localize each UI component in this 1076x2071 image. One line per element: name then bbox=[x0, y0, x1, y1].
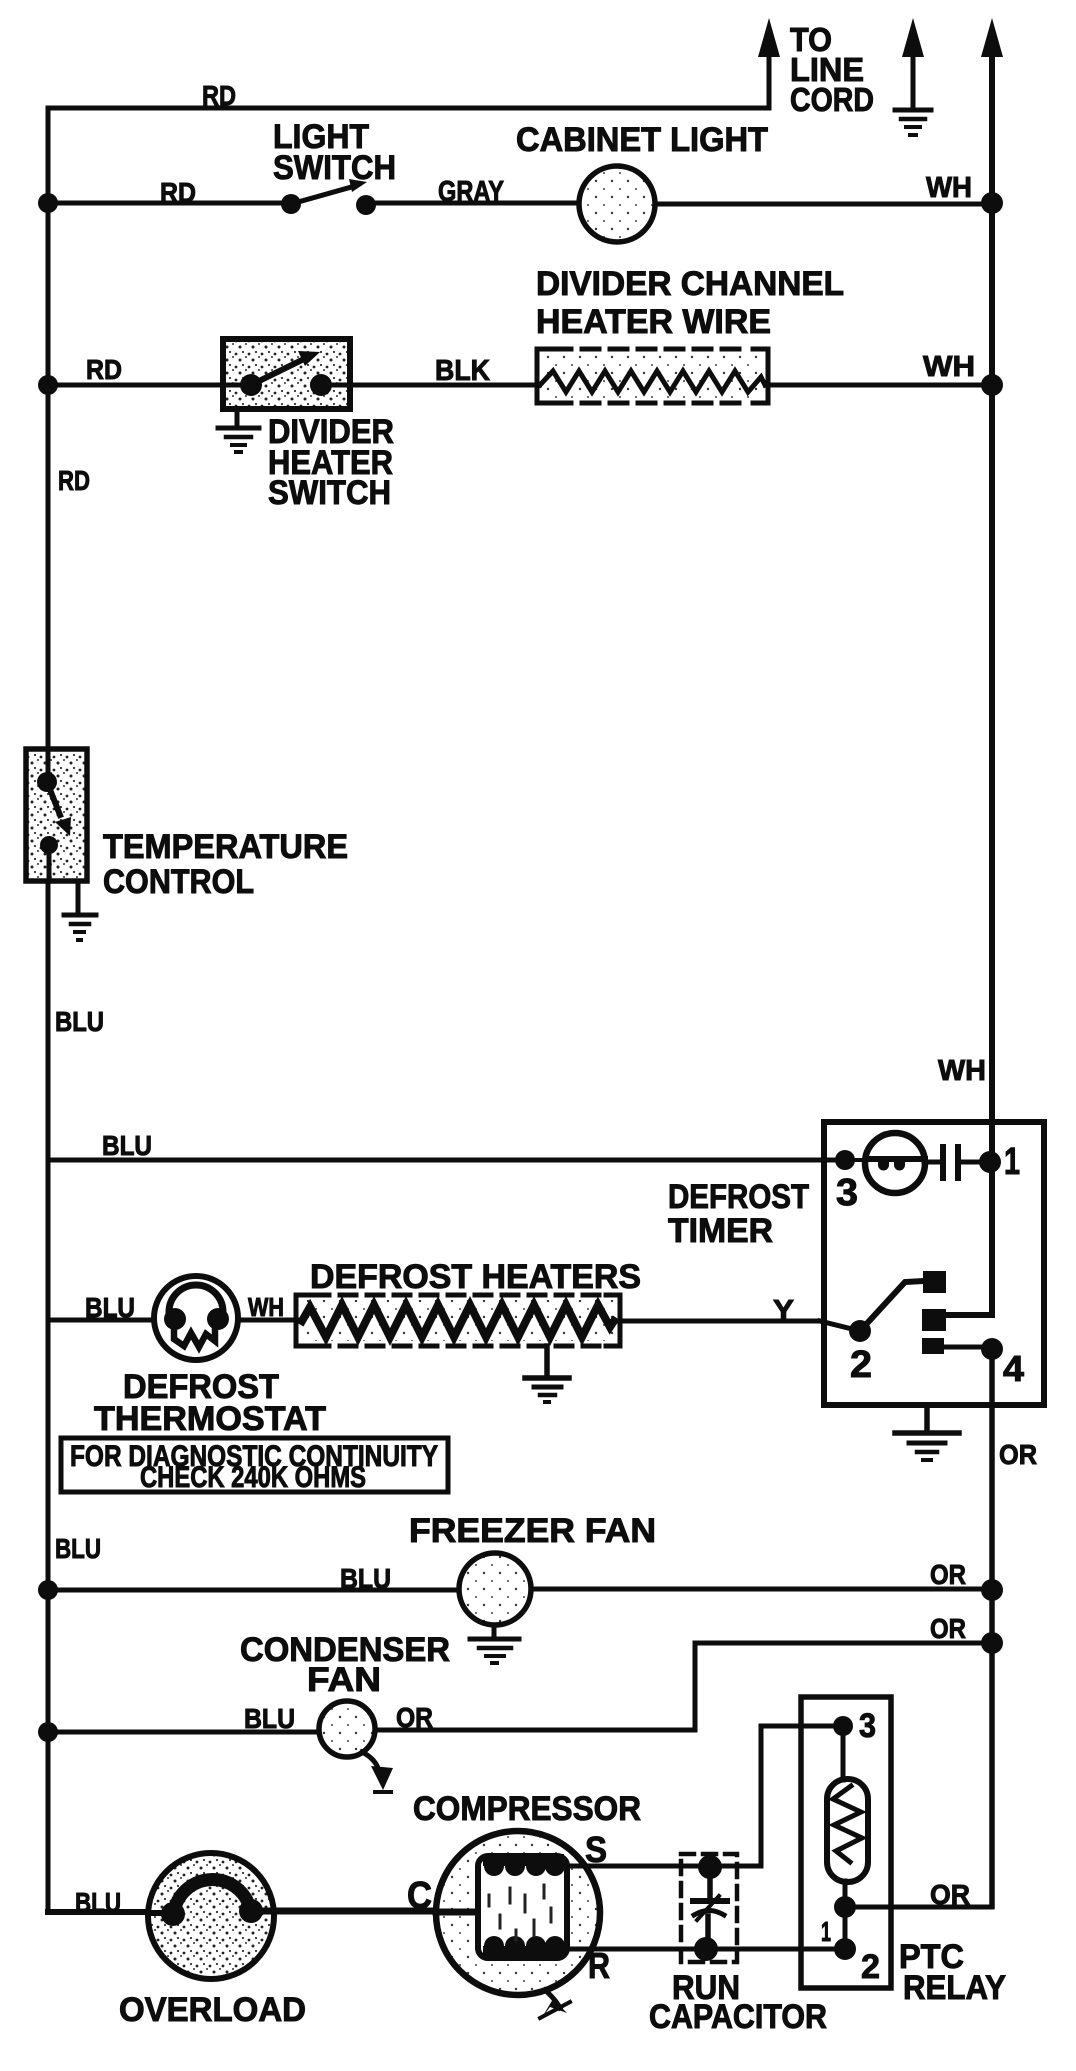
svg-text:WH: WH bbox=[938, 1055, 986, 1087]
svg-text:TIMER: TIMER bbox=[668, 1212, 773, 1250]
svg-text:DEFROST HEATERS: DEFROST HEATERS bbox=[310, 1258, 641, 1296]
svg-text:OR: OR bbox=[930, 1559, 966, 1590]
svg-text:BLU: BLU bbox=[244, 1703, 295, 1734]
svg-text:Y: Y bbox=[773, 1295, 794, 1327]
svg-text:BLU: BLU bbox=[340, 1563, 391, 1594]
svg-text:3: 3 bbox=[859, 1707, 876, 1745]
svg-text:S: S bbox=[585, 1829, 607, 1870]
svg-text:1: 1 bbox=[1004, 1141, 1020, 1183]
svg-text:1: 1 bbox=[821, 1916, 831, 1947]
svg-text:TEMPERATURE: TEMPERATURE bbox=[103, 828, 348, 866]
svg-text:2: 2 bbox=[850, 1344, 872, 1386]
svg-text:OVERLOAD: OVERLOAD bbox=[119, 1991, 306, 2029]
svg-text:BLU: BLU bbox=[75, 1887, 121, 1918]
svg-text:COMPRESSOR: COMPRESSOR bbox=[413, 1790, 641, 1828]
svg-text:BLU: BLU bbox=[55, 1533, 101, 1564]
svg-text:BLU: BLU bbox=[102, 1130, 152, 1161]
svg-text:OR: OR bbox=[930, 1613, 966, 1644]
svg-text:C: C bbox=[407, 1875, 432, 1917]
svg-text:OR: OR bbox=[999, 1439, 1037, 1470]
svg-text:RELAY: RELAY bbox=[903, 1969, 1006, 2007]
svg-text:THERMOSTAT: THERMOSTAT bbox=[94, 1400, 326, 1438]
svg-text:CONTROL: CONTROL bbox=[103, 863, 254, 901]
svg-text:DEFROST: DEFROST bbox=[668, 1178, 809, 1216]
svg-text:FREEZER FAN: FREEZER FAN bbox=[409, 1512, 656, 1550]
svg-text:CABINET LIGHT: CABINET LIGHT bbox=[516, 121, 768, 159]
svg-text:HEATER WIRE: HEATER WIRE bbox=[536, 303, 771, 341]
svg-text:BLK: BLK bbox=[435, 355, 490, 387]
svg-text:2: 2 bbox=[861, 1948, 880, 1986]
svg-text:DIVIDER CHANNEL: DIVIDER CHANNEL bbox=[536, 265, 844, 303]
svg-text:4: 4 bbox=[1003, 1348, 1024, 1389]
svg-text:RD: RD bbox=[160, 177, 196, 208]
svg-text:RD: RD bbox=[58, 465, 90, 496]
svg-text:WH: WH bbox=[926, 172, 972, 204]
svg-text:R: R bbox=[588, 1945, 610, 1986]
svg-text:OR: OR bbox=[396, 1702, 433, 1733]
svg-text:GRAY: GRAY bbox=[438, 176, 504, 208]
svg-text:3: 3 bbox=[836, 1172, 858, 1214]
svg-text:FAN: FAN bbox=[307, 1661, 381, 1699]
svg-text:RD: RD bbox=[86, 354, 122, 385]
svg-text:CAPACITOR: CAPACITOR bbox=[649, 1998, 827, 2036]
svg-text:RD: RD bbox=[202, 80, 236, 111]
svg-text:OR: OR bbox=[930, 1879, 970, 1910]
svg-text:SWITCH: SWITCH bbox=[273, 149, 396, 187]
svg-text:CHECK 240K OHMS: CHECK 240K OHMS bbox=[140, 1461, 366, 1494]
svg-text:WH: WH bbox=[923, 351, 975, 383]
svg-text:BLU: BLU bbox=[85, 1292, 135, 1323]
svg-text:BLU: BLU bbox=[55, 1006, 104, 1037]
svg-text:CORD: CORD bbox=[790, 81, 874, 118]
svg-text:SWITCH: SWITCH bbox=[268, 474, 391, 512]
